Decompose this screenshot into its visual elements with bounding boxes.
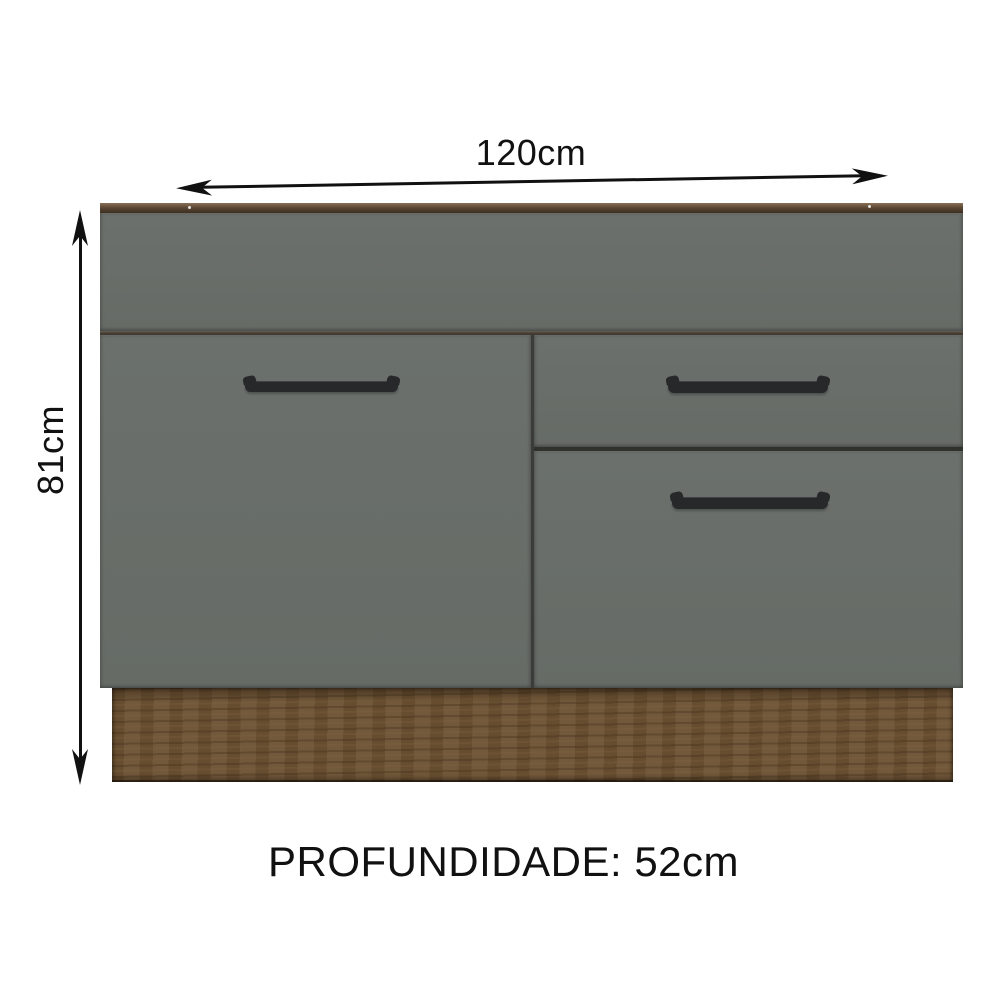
height-arrow-line: [79, 234, 82, 761]
bottom-drawer-handle: [672, 497, 828, 509]
top-drawer-handle: [668, 381, 828, 393]
screw-dot-right: [868, 205, 871, 208]
cabinet-bottom-drawer: [534, 451, 963, 688]
width-arrow-line: [200, 174, 864, 189]
cabinet-wood-plinth: [112, 688, 953, 782]
width-dimension-arrow: [176, 162, 888, 202]
cabinet-wood-top-edge: [100, 203, 963, 213]
screw-dot-left: [188, 206, 191, 209]
cabinet-front-view: [100, 203, 963, 688]
height-dimension-arrow: [67, 210, 95, 785]
cabinet-top-rail-panel: [100, 213, 963, 331]
product-dimension-diagram: 120cm 81cm PROFUNDIDADE: 52cm: [0, 0, 1000, 1000]
door-handle: [245, 381, 398, 392]
depth-dimension-label: PROFUNDIDADE: 52cm: [0, 839, 1000, 885]
